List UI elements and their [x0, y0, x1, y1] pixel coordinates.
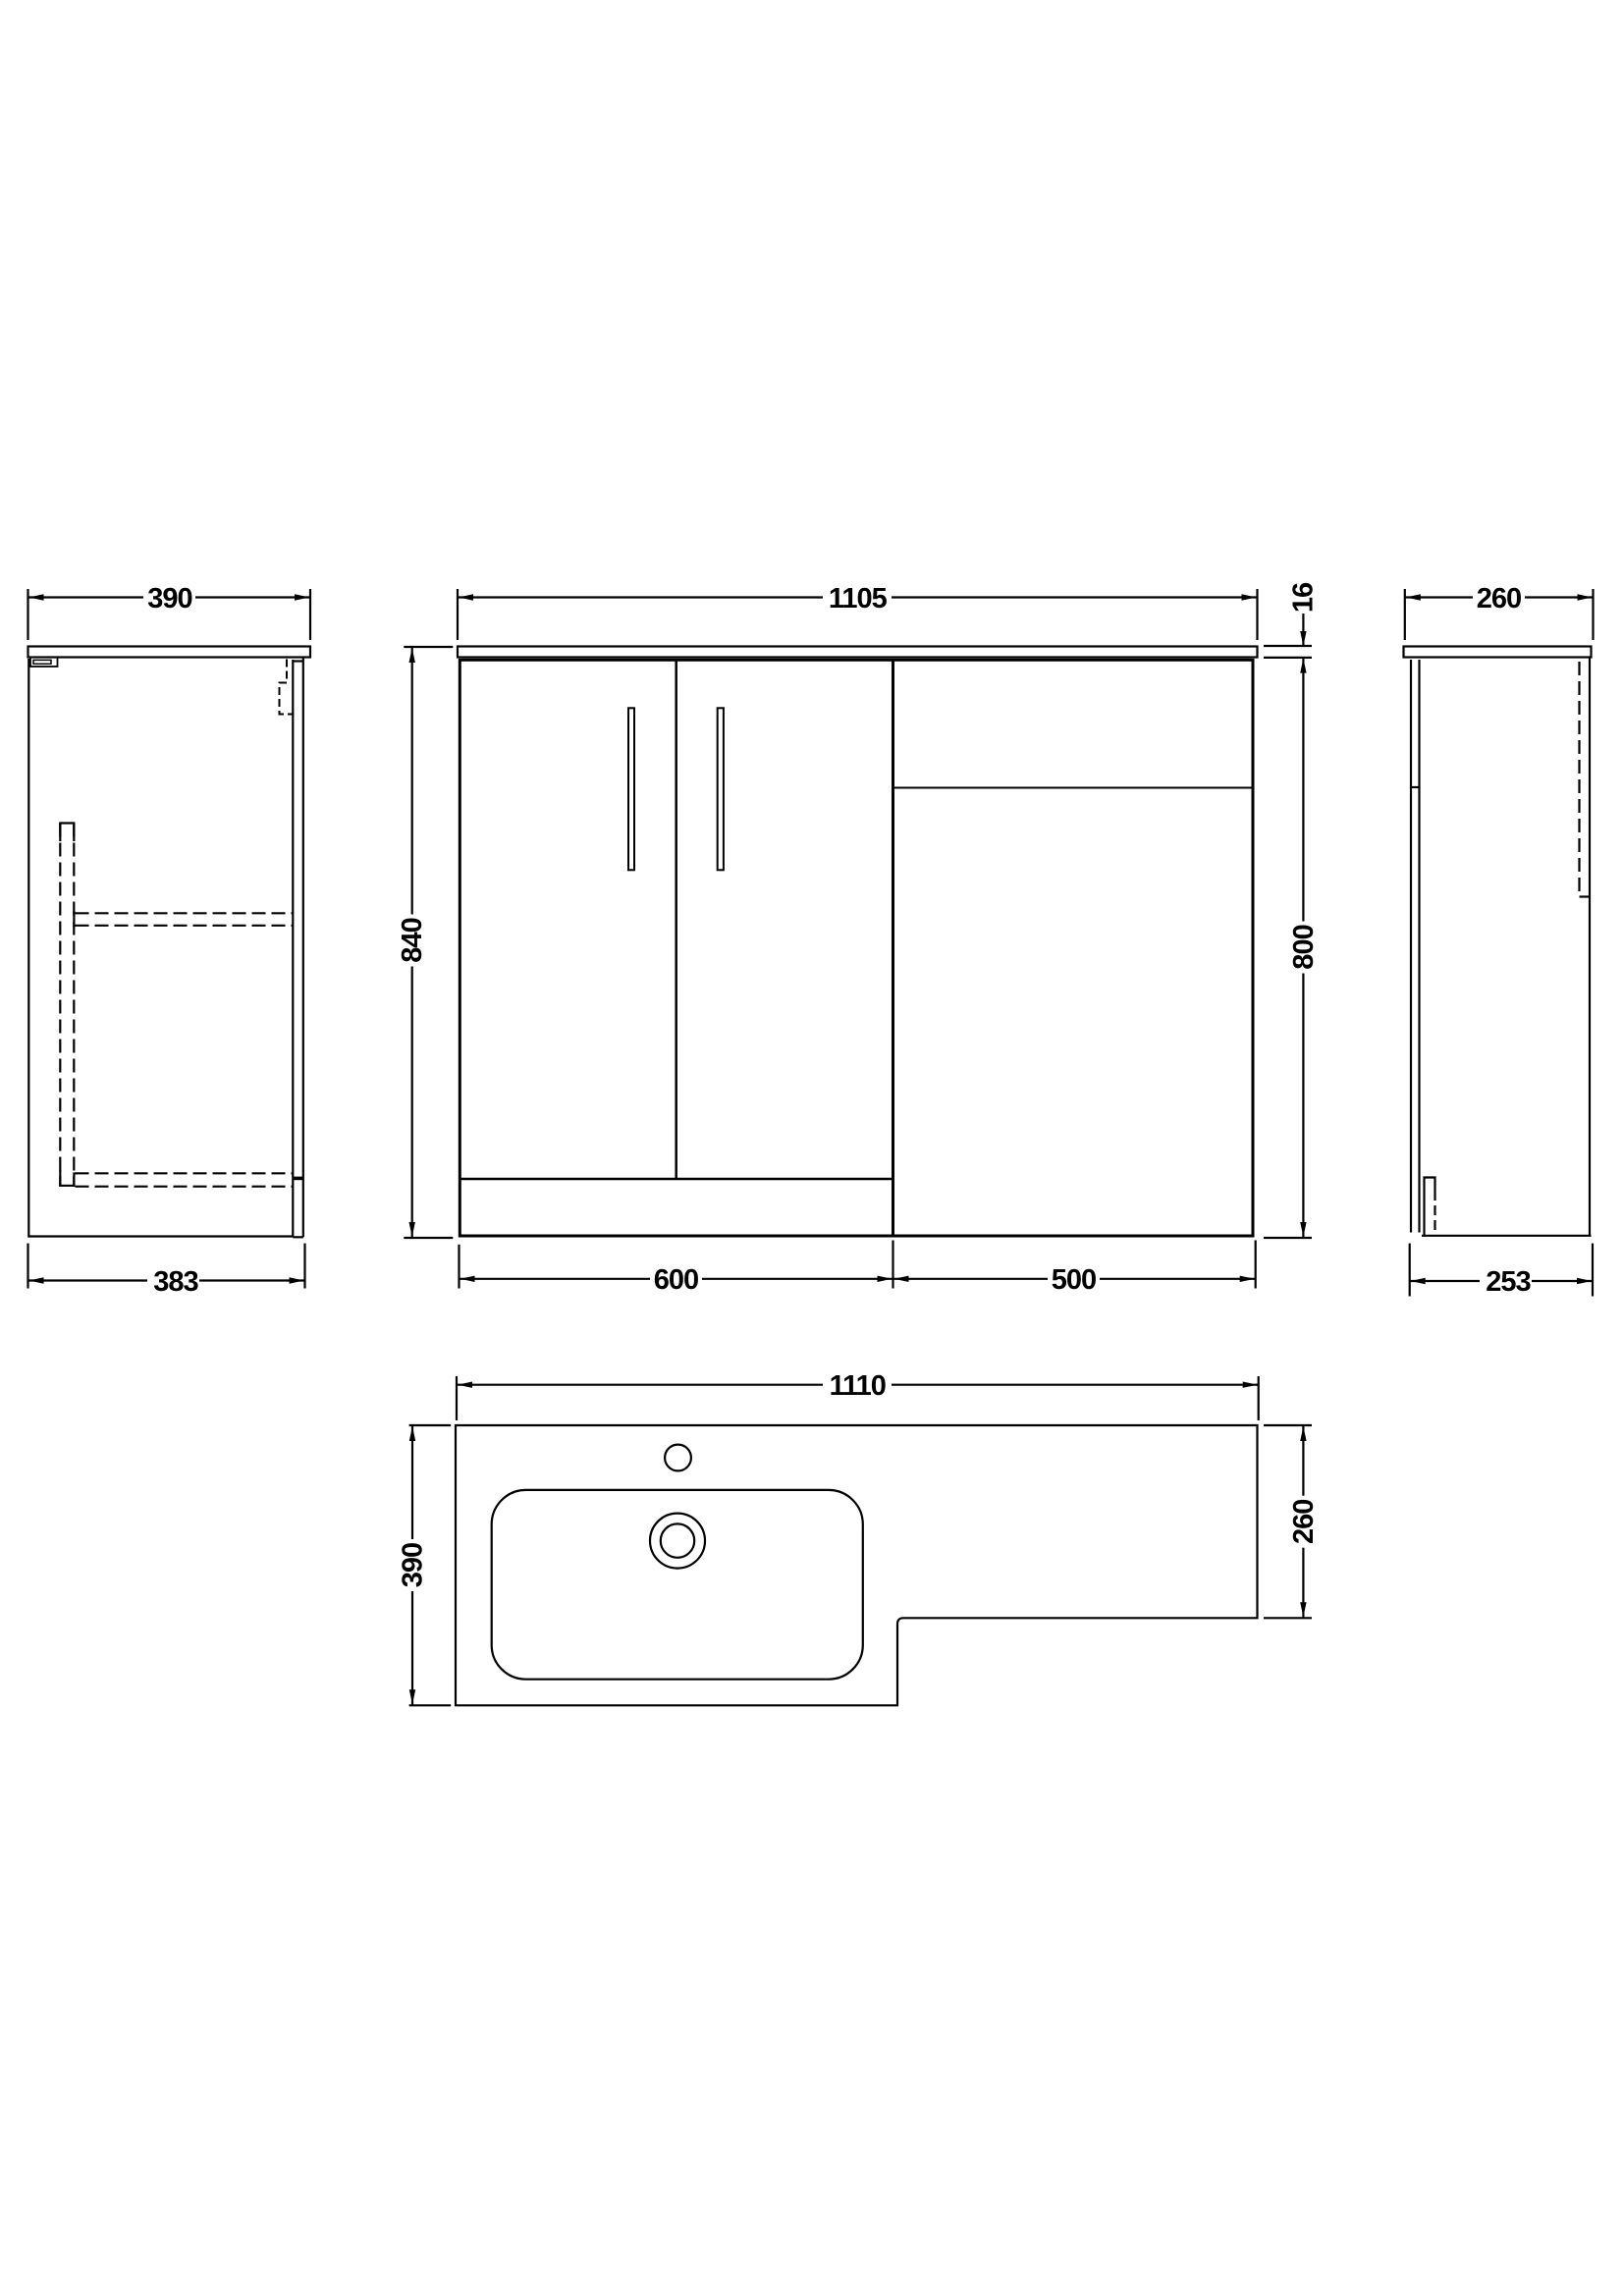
svg-text:390: 390	[147, 583, 191, 614]
svg-text:383: 383	[153, 1266, 198, 1298]
svg-text:840: 840	[397, 918, 428, 962]
svg-text:260: 260	[1477, 583, 1521, 614]
svg-text:253: 253	[1486, 1266, 1531, 1298]
svg-text:16: 16	[1288, 582, 1320, 613]
svg-text:1110: 1110	[830, 1370, 886, 1402]
svg-text:1105: 1105	[829, 583, 888, 614]
svg-text:800: 800	[1288, 925, 1320, 969]
svg-text:390: 390	[397, 1543, 428, 1587]
svg-text:260: 260	[1288, 1500, 1320, 1544]
svg-text:600: 600	[654, 1264, 698, 1296]
svg-text:500: 500	[1052, 1264, 1096, 1296]
